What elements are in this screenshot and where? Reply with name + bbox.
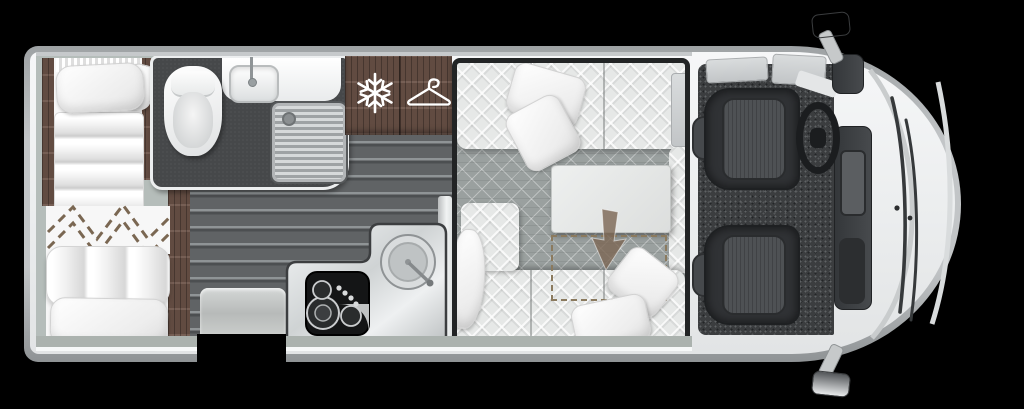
entry-step	[200, 288, 286, 334]
wiper-icon	[892, 98, 905, 312]
sofa-seam	[603, 63, 605, 149]
console-insert-lower	[839, 238, 865, 304]
snowflake-icon	[355, 71, 395, 115]
passenger-seat-cushion	[722, 235, 786, 315]
entry-door-opening	[197, 334, 286, 409]
cabinet-divider	[399, 55, 401, 135]
wall-band-bottom	[36, 336, 692, 347]
toilet-bowl	[173, 92, 213, 148]
wing-mirror-bottom	[811, 370, 851, 398]
sofa-side-backrest	[669, 147, 687, 273]
sofa-side-cabinet	[671, 73, 689, 147]
kitchen-sink	[381, 235, 435, 289]
dash-vent-left	[705, 56, 768, 83]
steering-wheel-hub	[810, 128, 826, 148]
kitchen-unit	[283, 220, 453, 348]
floorplan-canvas	[0, 0, 1024, 409]
driver-seat-cushion	[722, 98, 786, 180]
console-insert-upper	[840, 150, 866, 216]
lounge	[452, 58, 690, 348]
kitchen-hob	[306, 272, 369, 335]
sofa-seam	[530, 270, 532, 343]
wall-band-top	[36, 52, 692, 56]
windshield	[866, 60, 958, 352]
wall-line-bottom	[36, 347, 692, 351]
hanger-icon	[404, 75, 454, 109]
washbasin-faucet	[250, 57, 253, 79]
washbasin-drain	[248, 78, 257, 87]
wing-mirror-top	[811, 11, 851, 39]
pillow-top-main	[55, 62, 145, 115]
shower-drain	[282, 112, 296, 126]
